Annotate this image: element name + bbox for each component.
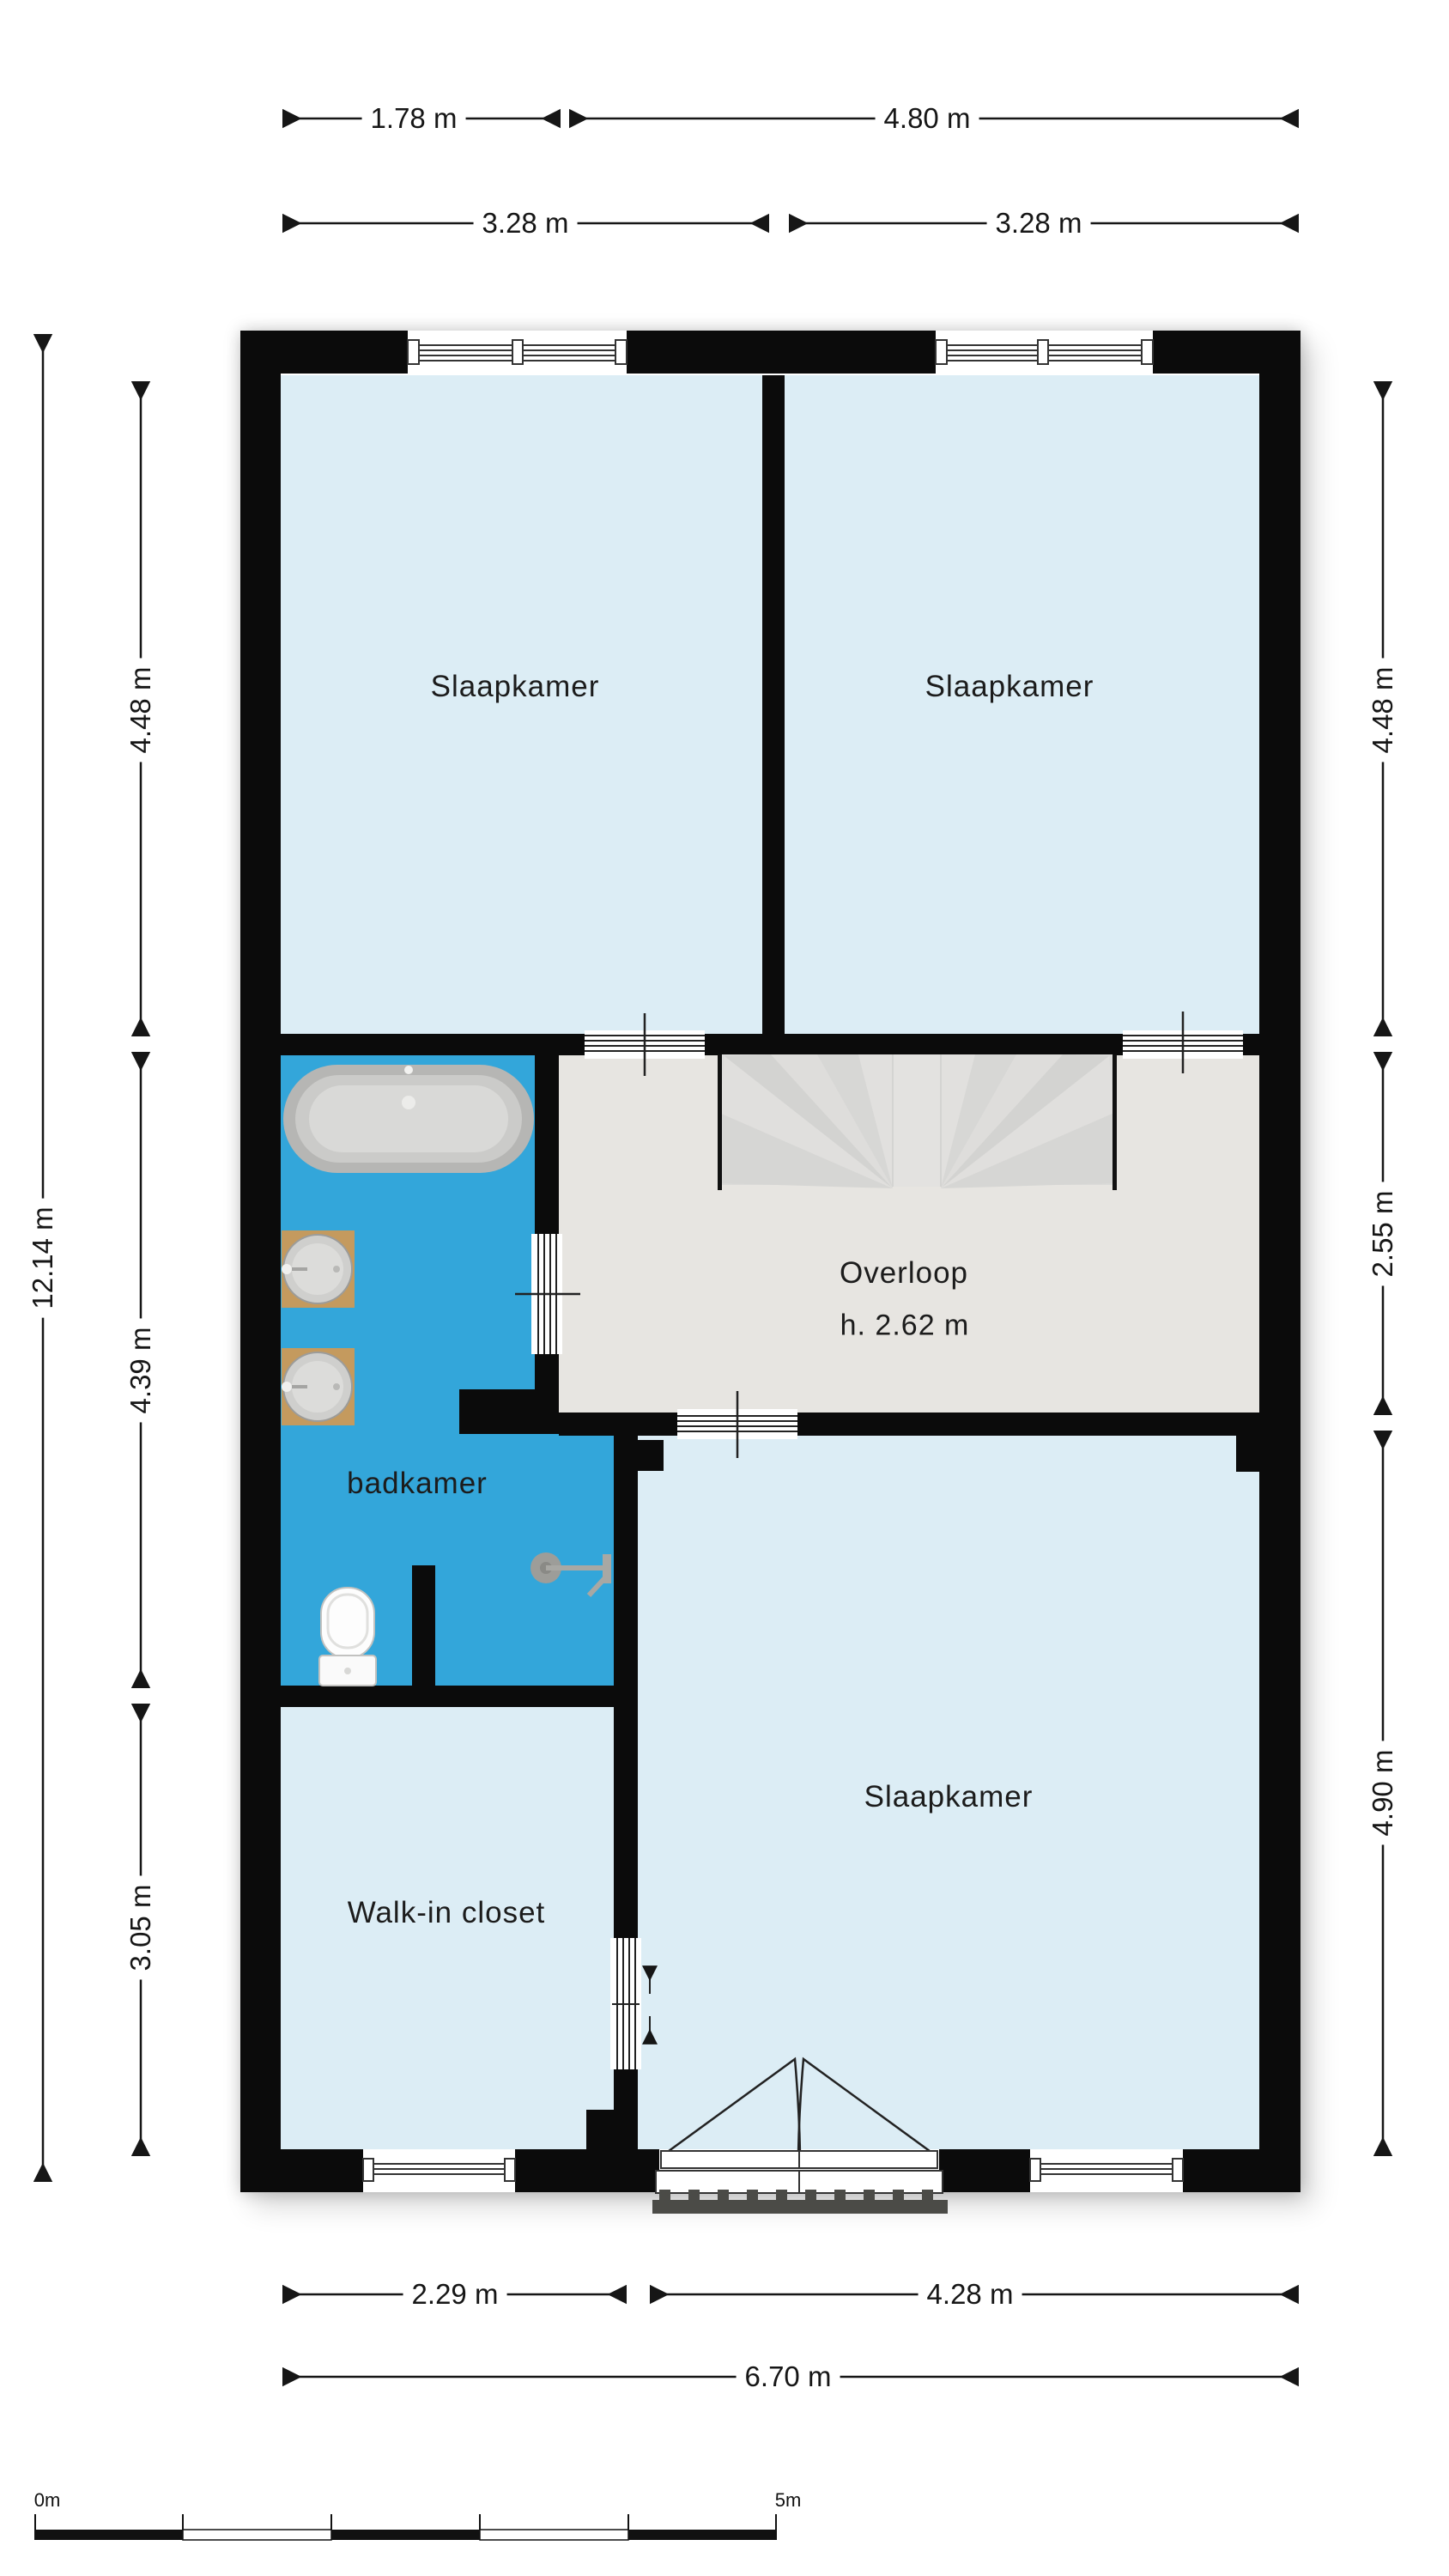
dimension-right-1: 4.48 m bbox=[1365, 659, 1401, 762]
stairs-icon bbox=[718, 1054, 1117, 1190]
dimension-left-2: 4.39 m bbox=[123, 1319, 159, 1423]
washbasin-icon bbox=[282, 1230, 355, 1308]
floorplan-sheet: Slaapkamer Slaapkamer Overloop h. 2.62 m… bbox=[0, 0, 1449, 2576]
dimension-bottom-3: 6.70 m bbox=[737, 2359, 840, 2395]
bathtub-icon bbox=[283, 1065, 534, 1173]
scale-bar-end-label: 5m bbox=[775, 2489, 802, 2512]
dimension-top-4: 3.28 m bbox=[987, 205, 1091, 241]
door-icon bbox=[677, 1391, 797, 1458]
dimension-right-3: 4.90 m bbox=[1365, 1741, 1401, 1845]
dimension-lines bbox=[43, 118, 1383, 2377]
window-icon bbox=[1030, 2149, 1183, 2192]
door-icon bbox=[585, 1013, 705, 1076]
room-label-landing-height: h. 2.62 m bbox=[840, 1309, 970, 1343]
dimension-left-outer: 12.14 m bbox=[25, 1198, 61, 1317]
room-label-bathroom: badkamer bbox=[347, 1467, 488, 1501]
dimension-right-2: 2.55 m bbox=[1365, 1182, 1401, 1286]
scale-bar bbox=[34, 2514, 777, 2540]
room-label-bedroom-top-left: Slaapkamer bbox=[431, 670, 600, 704]
window-icon bbox=[936, 331, 1153, 374]
dimension-top-2: 4.80 m bbox=[876, 100, 979, 137]
dimension-bottom-1: 2.29 m bbox=[403, 2276, 507, 2312]
dimension-top-3: 3.28 m bbox=[474, 205, 578, 241]
toilet-icon bbox=[319, 1588, 376, 1686]
window-icon bbox=[408, 331, 627, 374]
dimension-top-1: 1.78 m bbox=[362, 100, 466, 137]
scale-bar-start-label: 0m bbox=[34, 2489, 61, 2512]
plan-graphics bbox=[0, 0, 1449, 2576]
room-label-landing: Overloop bbox=[840, 1256, 968, 1291]
dimension-bottom-2: 4.28 m bbox=[919, 2276, 1022, 2312]
window-icon bbox=[363, 2149, 515, 2192]
dimension-left-3: 3.05 m bbox=[123, 1876, 159, 1980]
room-label-bedroom-top-right: Slaapkamer bbox=[925, 670, 1094, 704]
door-icon bbox=[610, 1938, 650, 2069]
door-icon bbox=[1123, 1012, 1243, 1073]
shower-head-icon bbox=[530, 1552, 611, 1595]
dimension-left-1: 4.48 m bbox=[123, 659, 159, 762]
door-icon bbox=[515, 1234, 580, 1354]
room-label-bedroom-bottom: Slaapkamer bbox=[864, 1780, 1034, 1814]
french-doors-icon bbox=[656, 2059, 943, 2193]
washbasin-icon bbox=[282, 1348, 355, 1425]
room-label-closet: Walk-in closet bbox=[348, 1896, 546, 1930]
